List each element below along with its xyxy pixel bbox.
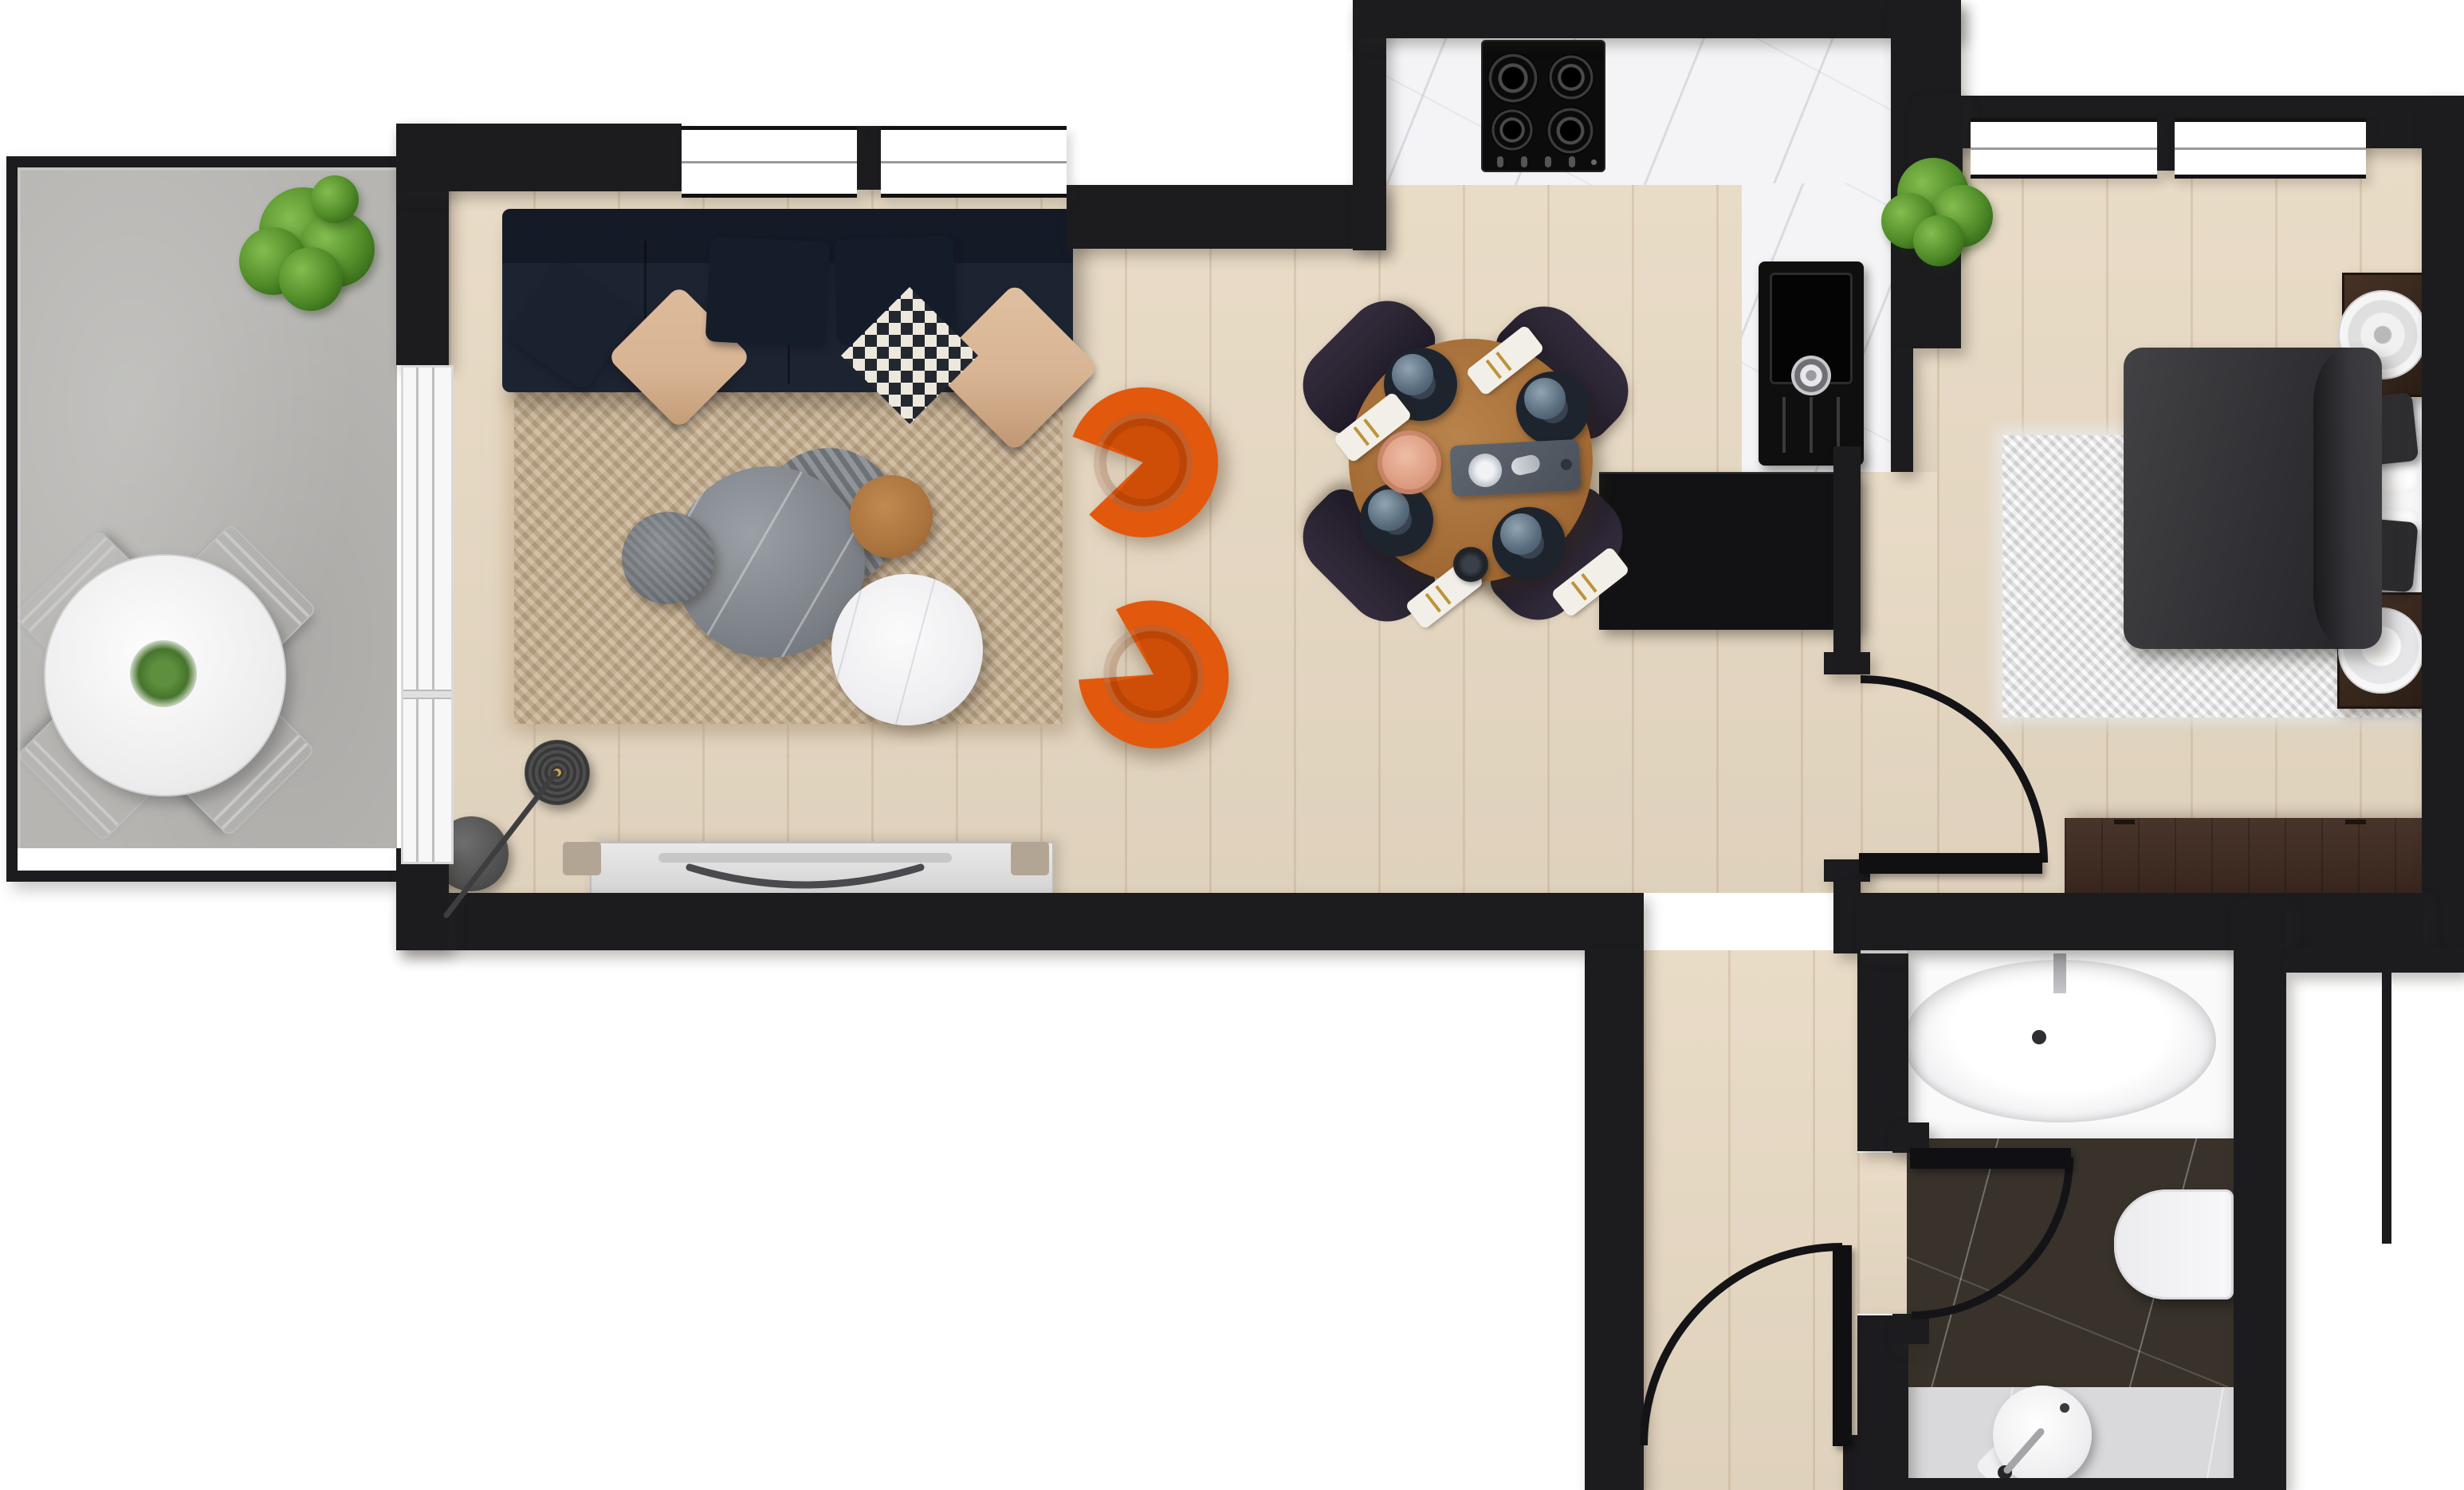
bedroom-floor-left-lower — [1861, 472, 1937, 893]
serving-board — [1449, 439, 1581, 497]
dinner-plate — [1516, 372, 1590, 445]
living-bottom-wall — [396, 893, 1644, 950]
living-window-1 — [682, 126, 857, 198]
bowl — [1500, 513, 1542, 555]
wall-hung-toilet — [2114, 1189, 2234, 1299]
burner-bottom-left — [1491, 108, 1534, 151]
living-window-2 — [881, 126, 1067, 198]
dinner-plate — [1492, 507, 1566, 580]
burner-top-left — [1487, 53, 1539, 104]
bathroom-door-threshold — [1857, 1153, 1908, 1314]
bowl — [1524, 378, 1566, 419]
bedroom-doorframe-top — [1824, 652, 1870, 674]
exterior-wall-right-of-bathroom — [2286, 949, 2464, 973]
duvet-fold — [2313, 348, 2382, 649]
bathroom-left-wall-upper — [1857, 953, 1908, 1151]
kitchen-counter-top-run — [1385, 36, 1891, 185]
kitchen-bedroom-wall-thin — [1891, 348, 1913, 472]
cooktop-knob — [1569, 156, 1575, 167]
copper-tray — [1377, 430, 1441, 494]
bathtub-faucet — [2053, 953, 2066, 993]
kitchen-black-base-cabinet — [1599, 472, 1861, 630]
console-speaker-left — [563, 842, 601, 875]
balcony-wall-frame — [6, 156, 410, 882]
kitchen-top-wall — [1353, 0, 1961, 38]
kitchen-sink-unit — [1759, 261, 1864, 466]
creamer-jug — [1510, 454, 1542, 478]
cooktop-knob — [1497, 156, 1503, 167]
armchair-seat — [1084, 403, 1201, 521]
white-marble-coffee-table — [831, 574, 983, 725]
bathroom-bottom-wall — [1857, 1478, 2286, 1490]
bowl — [1368, 489, 1409, 531]
oak-side-table — [850, 475, 933, 558]
bedroom-partition-lower — [1833, 882, 1861, 953]
bathroom-door-leaf — [1910, 1148, 2071, 1169]
leaf-cluster — [1913, 215, 1964, 266]
cooktop-knob — [1545, 156, 1551, 167]
bedroom-window-mullion — [2157, 118, 2175, 171]
bed-duvet — [2124, 348, 2382, 649]
sofa-back-cushion — [705, 236, 831, 348]
drainboard-groove — [1837, 397, 1840, 453]
lamp-center-dot — [553, 769, 561, 776]
small-gray-side-table — [622, 512, 714, 604]
drainboard-groove — [1782, 397, 1786, 453]
bedroom-right-wall — [2422, 96, 2464, 950]
bedroom-window-2 — [2175, 118, 2366, 179]
floor-lamp-head — [525, 740, 590, 805]
dresser-handle — [2114, 820, 2135, 824]
board-handle-hole — [1561, 458, 1573, 470]
bowl — [1392, 354, 1433, 395]
drainboard-groove — [1810, 397, 1813, 453]
bathtub-drain — [2032, 1030, 2046, 1044]
hallway-floor — [1644, 950, 1857, 1490]
window-mullion — [857, 126, 881, 190]
exterior-wall-line — [2382, 973, 2391, 1244]
gas-cooktop — [1481, 40, 1605, 172]
dresser-handle — [2345, 820, 2366, 824]
armchair-seat — [1087, 608, 1220, 741]
bathroom-right-wall — [2234, 901, 2286, 1490]
basin-detail-dot — [2060, 1403, 2069, 1413]
bedroom-window-1 — [1971, 118, 2157, 179]
cooktop-knob — [1521, 156, 1527, 167]
console-speaker-right — [1011, 842, 1049, 875]
door-divider — [403, 690, 451, 699]
bathroom-doorframe-bottom — [1892, 1314, 1929, 1344]
burner-bottom-right — [1546, 107, 1594, 155]
hallway-left-wall — [1585, 950, 1644, 1490]
entry-door-leaf — [1833, 1245, 1852, 1446]
dinner-plate — [1360, 483, 1433, 556]
bedroom-door-leaf — [1859, 853, 2042, 874]
cooktop-ignition — [1591, 159, 1597, 165]
coffee-cup — [1453, 547, 1488, 582]
living-top-wall-left — [396, 124, 682, 191]
teapot — [1468, 453, 1503, 488]
burner-top-right — [1548, 54, 1594, 100]
bedroom-partition-upper — [1833, 446, 1861, 652]
tv-bar — [658, 853, 952, 863]
sink-faucet — [1791, 356, 1831, 395]
sliding-glass-door — [401, 365, 454, 864]
bedroom-bottom-wall — [1861, 893, 2423, 950]
floor-plan — [0, 0, 2464, 1490]
living-top-wall-right — [1067, 185, 1385, 249]
